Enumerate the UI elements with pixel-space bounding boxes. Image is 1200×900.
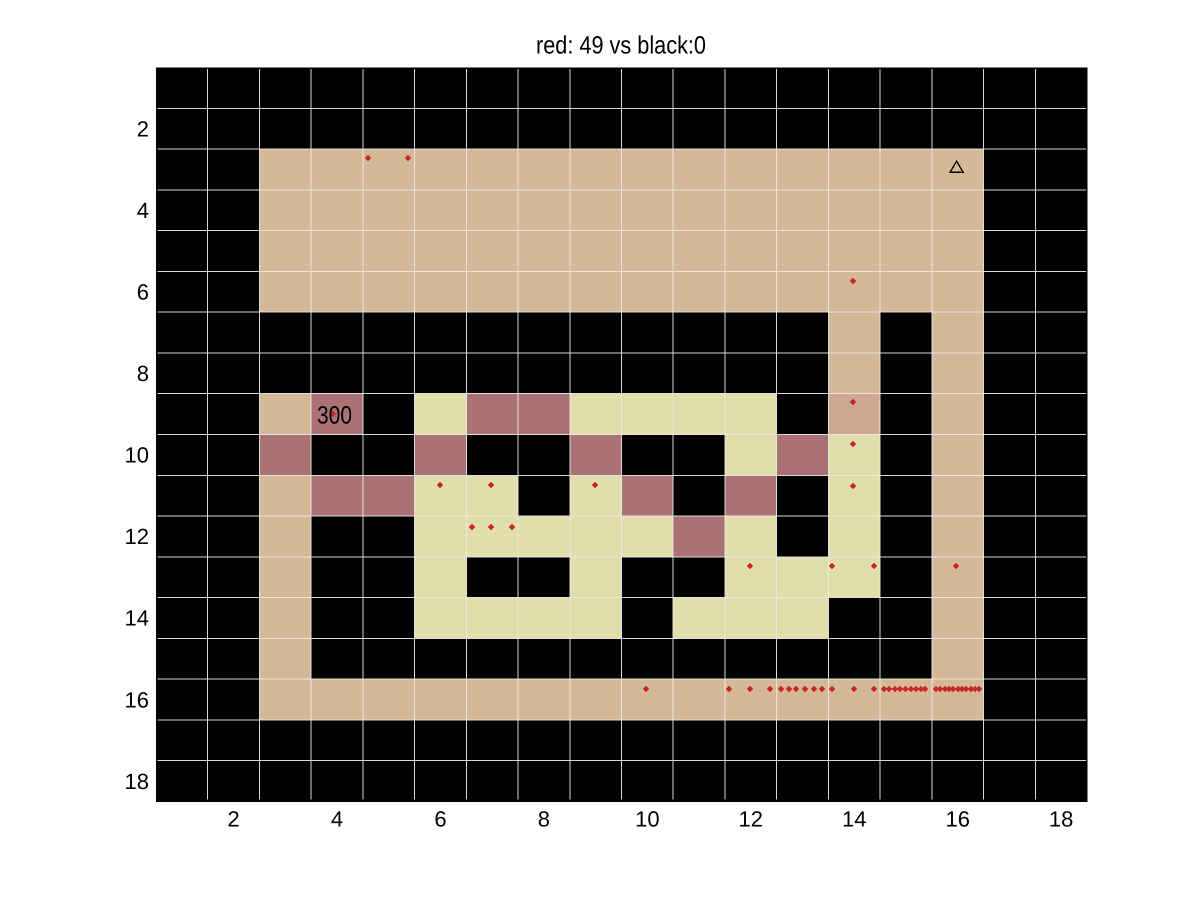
- svg-text:6: 6: [434, 807, 446, 832]
- svg-text:12: 12: [739, 807, 763, 832]
- svg-text:16: 16: [945, 807, 969, 832]
- svg-text:14: 14: [125, 606, 149, 631]
- svg-text:18: 18: [125, 769, 149, 794]
- svg-text:18: 18: [1049, 807, 1073, 832]
- svg-text:12: 12: [125, 524, 149, 549]
- svg-text:10: 10: [125, 443, 149, 468]
- svg-text:300: 300: [317, 402, 352, 430]
- svg-text:red: 49 vs black:0: red: 49 vs black:0: [536, 32, 706, 60]
- svg-text:4: 4: [331, 807, 343, 832]
- svg-text:2: 2: [137, 116, 149, 141]
- svg-text:4: 4: [137, 198, 149, 223]
- svg-text:8: 8: [137, 361, 149, 386]
- svg-text:10: 10: [635, 807, 659, 832]
- svg-text:16: 16: [125, 687, 149, 712]
- svg-text:14: 14: [842, 807, 866, 832]
- svg-text:8: 8: [538, 807, 550, 832]
- svg-text:6: 6: [137, 280, 149, 305]
- svg-text:2: 2: [227, 807, 239, 832]
